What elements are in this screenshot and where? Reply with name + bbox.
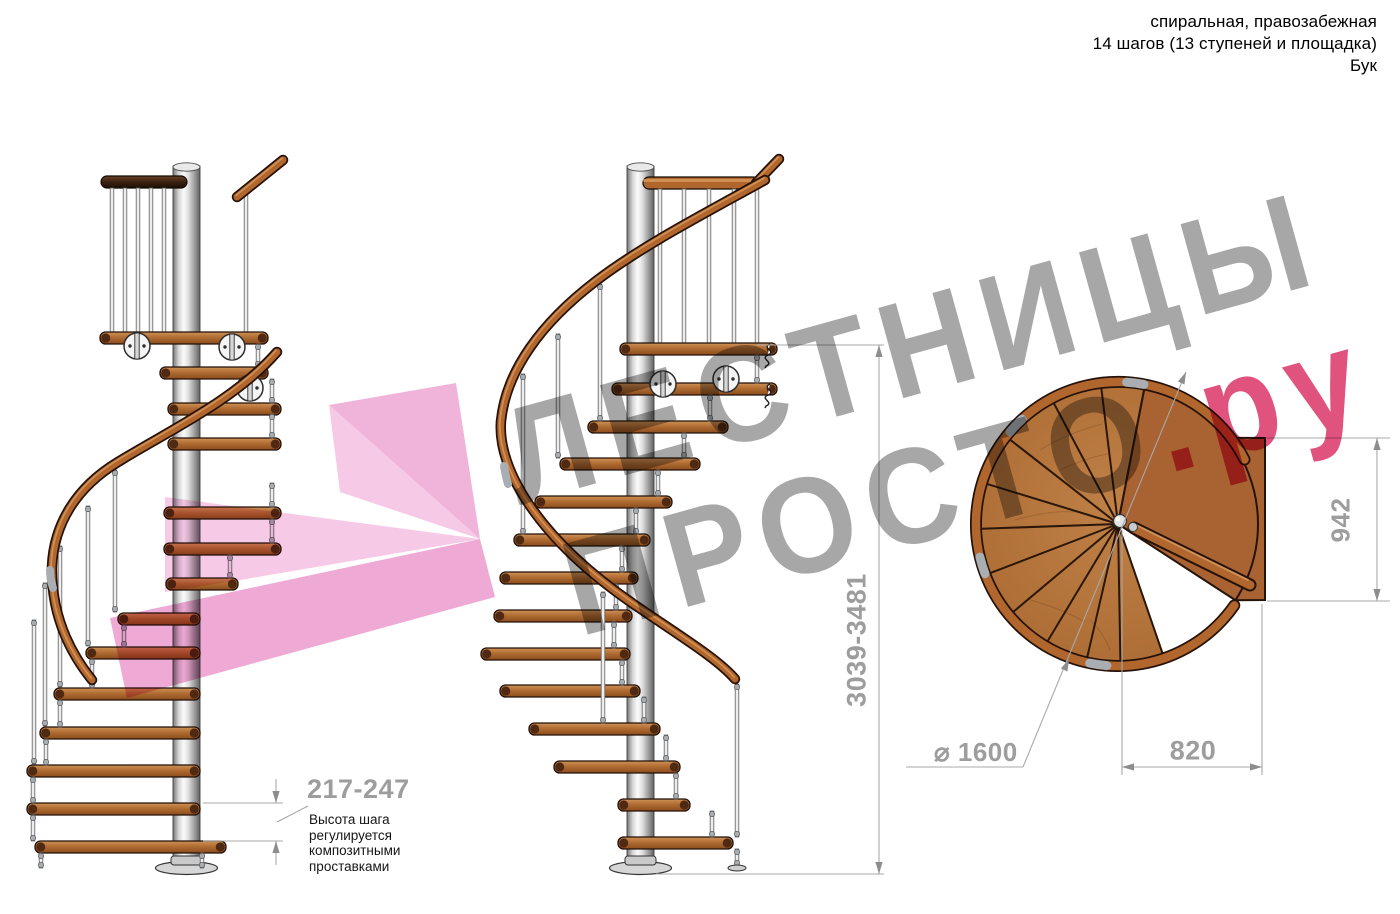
dimension-platform-depth-label: 942 bbox=[1326, 498, 1357, 543]
plan-view bbox=[976, 382, 1265, 666]
dimension-step-height-label: 217-247 bbox=[307, 774, 410, 805]
left-stair-elevation bbox=[27, 158, 283, 874]
dimension-platform-width-label: 820 bbox=[1170, 736, 1217, 767]
spec-type-line: спиральная, правозабежная bbox=[1093, 11, 1377, 33]
dimension-diameter-label: ⌀ 1600 bbox=[934, 737, 1018, 768]
spec-material-line: Бук bbox=[1093, 55, 1377, 77]
dimension-total-height-label: 3039-3481 bbox=[842, 573, 873, 707]
spec-steps-line: 14 шагов (13 ступеней и площадка) bbox=[1093, 33, 1377, 55]
spec-header: спиральная, правозабежная 14 шагов (13 с… bbox=[1093, 11, 1377, 77]
staircase-technical-drawing-page: спиральная, правозабежная 14 шагов (13 с… bbox=[0, 0, 1400, 914]
technical-drawing bbox=[0, 0, 1400, 914]
dimension-step-height-note: Высота шага регулируется композитными пр… bbox=[309, 812, 400, 874]
middle-stair-elevation bbox=[481, 157, 779, 874]
